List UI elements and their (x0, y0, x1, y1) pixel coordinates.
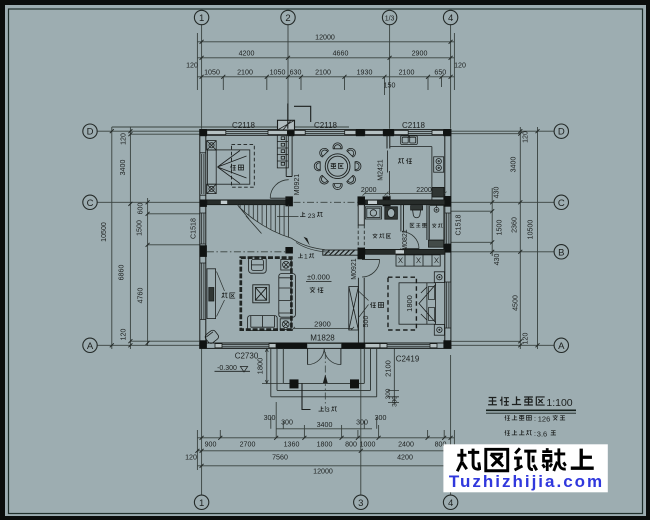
svg-text:2: 2 (285, 13, 290, 24)
svg-text:10500: 10500 (527, 220, 535, 240)
svg-text:C1518: C1518 (190, 218, 198, 239)
svg-text:Tuzhizhijia.com: Tuzhizhijia.com (449, 472, 604, 491)
svg-text:C2118: C2118 (232, 121, 256, 130)
svg-text:600: 600 (137, 203, 145, 215)
svg-text:2700: 2700 (240, 441, 256, 449)
svg-text:4500: 4500 (511, 295, 519, 311)
svg-text:120: 120 (119, 133, 127, 145)
svg-text:1/3: 1/3 (385, 16, 395, 23)
svg-text:3400: 3400 (119, 160, 127, 176)
svg-text:1: 1 (199, 498, 204, 509)
svg-text:C2118: C2118 (314, 121, 338, 130)
svg-text:2360: 2360 (510, 217, 518, 233)
svg-text:D: D (87, 127, 94, 138)
svg-text:3.6: 3.6 (537, 430, 547, 439)
svg-text:150: 150 (384, 82, 396, 90)
svg-text:M0821: M0821 (402, 229, 409, 251)
svg-text:2400: 2400 (398, 441, 414, 449)
svg-text:C2730: C2730 (235, 352, 259, 361)
svg-text:2200: 2200 (416, 187, 432, 194)
svg-text:M1828: M1828 (310, 334, 335, 343)
svg-text:A: A (558, 341, 565, 352)
svg-text:1500: 1500 (136, 220, 144, 236)
svg-text:4200: 4200 (239, 50, 255, 58)
svg-text:M0921: M0921 (294, 174, 301, 196)
svg-text:12000: 12000 (315, 34, 335, 42)
svg-text:4: 4 (448, 13, 453, 24)
svg-text:1: 1 (304, 254, 308, 261)
svg-text:2100: 2100 (399, 69, 415, 77)
svg-text:4760: 4760 (137, 288, 145, 304)
svg-text:120: 120 (119, 329, 127, 341)
svg-text:10500: 10500 (100, 222, 108, 242)
svg-text:D: D (558, 127, 565, 138)
svg-text:1: 1 (199, 13, 204, 24)
svg-text:120: 120 (454, 62, 466, 70)
svg-text:2100: 2100 (237, 69, 253, 77)
svg-text:B: B (558, 247, 564, 258)
svg-text:4: 4 (448, 498, 453, 509)
svg-text:M0921: M0921 (351, 258, 358, 280)
svg-text:1930: 1930 (357, 69, 373, 77)
svg-text:800: 800 (345, 441, 357, 449)
svg-text:C: C (558, 198, 565, 209)
svg-text:650: 650 (434, 69, 446, 77)
svg-text:1050: 1050 (270, 69, 286, 77)
svg-text:23: 23 (308, 213, 316, 220)
svg-text:6860: 6860 (117, 265, 125, 281)
svg-text:3400: 3400 (510, 157, 518, 173)
svg-text:120: 120 (185, 454, 197, 462)
svg-text:M2421: M2421 (377, 159, 384, 181)
svg-text:1360: 1360 (284, 441, 300, 449)
svg-text:C2118: C2118 (402, 121, 426, 130)
svg-text:300: 300 (392, 396, 399, 407)
svg-text:1:100: 1:100 (546, 397, 572, 409)
svg-text:4200: 4200 (397, 454, 413, 462)
svg-text:C: C (87, 198, 94, 209)
svg-text:430: 430 (493, 187, 501, 199)
svg-text:±0.000: ±0.000 (307, 273, 330, 282)
svg-text:120: 120 (521, 333, 529, 345)
svg-text:1500: 1500 (495, 220, 503, 236)
svg-text:630: 630 (290, 69, 302, 77)
svg-text:2100: 2100 (383, 360, 392, 377)
svg-text:2900: 2900 (412, 50, 428, 58)
svg-text:1050: 1050 (204, 69, 220, 77)
svg-text:2100: 2100 (315, 69, 331, 77)
svg-text:-0.300: -0.300 (217, 365, 237, 372)
svg-text:120: 120 (186, 62, 198, 70)
svg-text:A: A (87, 341, 94, 352)
svg-text:500: 500 (363, 316, 370, 328)
svg-text:430: 430 (493, 254, 501, 266)
svg-text:2900: 2900 (314, 320, 331, 329)
svg-text:3: 3 (326, 407, 330, 414)
svg-text:126: 126 (538, 415, 551, 424)
svg-text:300: 300 (264, 414, 276, 422)
svg-text:1000: 1000 (360, 441, 376, 449)
svg-text:12000: 12000 (313, 468, 333, 476)
svg-text:900: 900 (205, 441, 217, 449)
svg-text:7560: 7560 (272, 454, 288, 462)
svg-text:300: 300 (281, 419, 293, 427)
svg-text:1800: 1800 (405, 295, 414, 312)
svg-text:C2419: C2419 (396, 355, 420, 364)
svg-text:4660: 4660 (333, 50, 349, 58)
svg-text:3400: 3400 (317, 421, 333, 429)
svg-text::: : (534, 416, 536, 423)
svg-text:3: 3 (358, 498, 363, 509)
svg-text:2000: 2000 (361, 187, 377, 194)
svg-text:300: 300 (375, 414, 387, 422)
svg-text:1800: 1800 (317, 441, 333, 449)
svg-text:C1518: C1518 (455, 214, 463, 235)
svg-text::: : (534, 431, 536, 438)
svg-text:120: 120 (521, 131, 529, 143)
svg-text:300: 300 (356, 419, 368, 427)
